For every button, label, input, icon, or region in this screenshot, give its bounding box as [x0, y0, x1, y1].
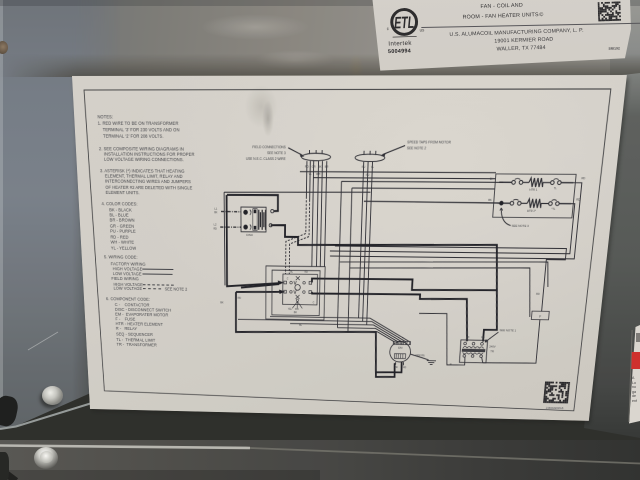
- svg-text:YL: YL: [308, 172, 312, 176]
- svg-text:SPEED TAPS FROM MOTOR: SPEED TAPS FROM MOTOR: [407, 140, 451, 144]
- svg-text:us: us: [419, 27, 425, 32]
- svg-text:RD: RD: [581, 176, 585, 180]
- svg-text:YEL: YEL: [288, 308, 293, 311]
- svg-text:BL: BL: [299, 323, 302, 327]
- svg-text:PU: PU: [362, 165, 366, 169]
- svg-text:DISC: DISC: [246, 233, 253, 237]
- svg-text:EM: EM: [398, 346, 403, 350]
- svg-text:240V: 240V: [489, 345, 496, 349]
- svg-text:RD: RD: [304, 270, 308, 274]
- svg-text:FIELD CONNECTIONS: FIELD CONNECTIONS: [252, 145, 286, 149]
- svg-text:*TL: *TL: [551, 207, 556, 211]
- svg-text:RD: RD: [305, 165, 309, 169]
- svg-text:USE N.E.C. CLASS 2 WIRE: USE N.E.C. CLASS 2 WIRE: [246, 157, 286, 161]
- svg-text:TR: TR: [490, 349, 495, 353]
- svg-text:WH: WH: [316, 172, 320, 176]
- svg-text:L1: L1: [214, 207, 217, 211]
- svg-text:GR: GR: [312, 165, 316, 169]
- svg-text:BH: BH: [490, 177, 494, 181]
- svg-text:PU: PU: [366, 173, 370, 177]
- svg-text:BK: BK: [318, 165, 322, 169]
- svg-text:C: C: [287, 278, 289, 281]
- svg-text:RD: RD: [536, 292, 540, 296]
- svg-text:L2: L2: [214, 223, 217, 227]
- svg-text:TL: TL: [554, 186, 558, 190]
- svg-text:BL: BL: [290, 269, 293, 273]
- svg-text:SEE NOTE 1: SEE NOTE 1: [499, 328, 516, 332]
- svg-text:RD: RD: [403, 366, 406, 369]
- svg-text:WH: WH: [295, 308, 299, 311]
- svg-text:SEE NOTE 2: SEE NOTE 2: [407, 146, 426, 150]
- svg-text:ETL: ETL: [394, 12, 415, 32]
- svg-text:C: C: [313, 301, 315, 304]
- svg-text:BR: BR: [325, 165, 329, 169]
- svg-text:BK: BK: [395, 366, 398, 369]
- svg-text:F: F: [539, 315, 541, 319]
- svg-text:BR: BR: [294, 311, 297, 314]
- svg-text:RD: RD: [238, 296, 241, 300]
- svg-text:SPEED: SPEED: [397, 343, 404, 345]
- svg-text:BK: BK: [488, 198, 492, 202]
- svg-text:HTR 2*: HTR 2*: [527, 209, 537, 213]
- svg-text:BK: BK: [220, 301, 223, 305]
- svg-text:YL: YL: [371, 165, 375, 169]
- svg-text:SEE NOTE 3: SEE NOTE 3: [267, 151, 286, 155]
- svg-text:RD: RD: [213, 226, 217, 230]
- svg-text:SEE NOTE 3: SEE NOTE 3: [511, 224, 529, 228]
- svg-text:c: c: [387, 26, 390, 31]
- svg-text:RD: RD: [481, 335, 485, 339]
- svg-text:BK: BK: [214, 211, 217, 215]
- svg-text:BK: BK: [466, 335, 470, 339]
- svg-text:HTR 1: HTR 1: [529, 187, 538, 191]
- svg-text:GRN/YEL: GRN/YEL: [415, 354, 425, 357]
